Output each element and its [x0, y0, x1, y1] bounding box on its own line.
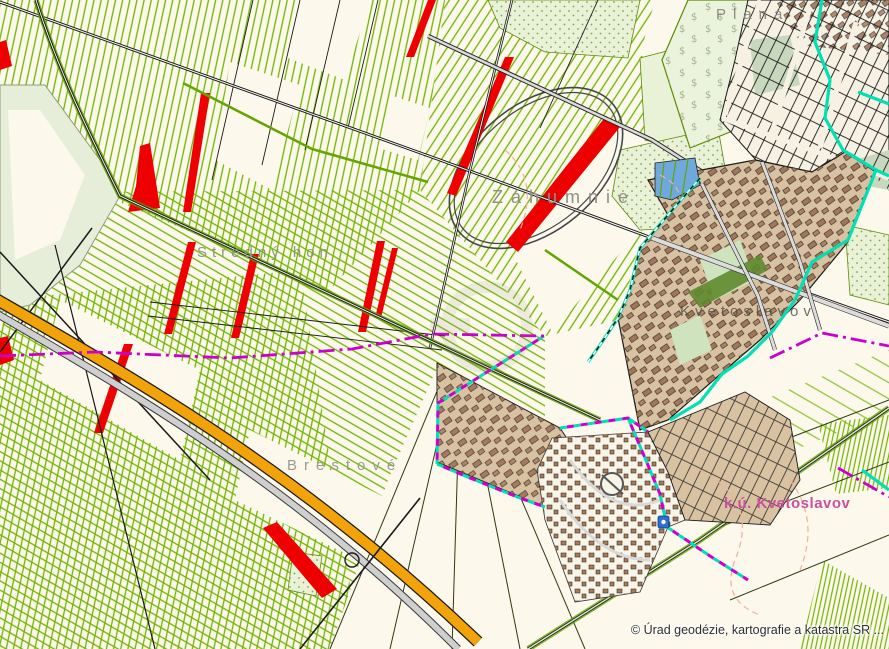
survey-marker-icon [658, 516, 669, 528]
map-graphics: $ $ [0, 0, 889, 649]
cadastral-map-canvas[interactable]: $ $ [0, 0, 889, 649]
